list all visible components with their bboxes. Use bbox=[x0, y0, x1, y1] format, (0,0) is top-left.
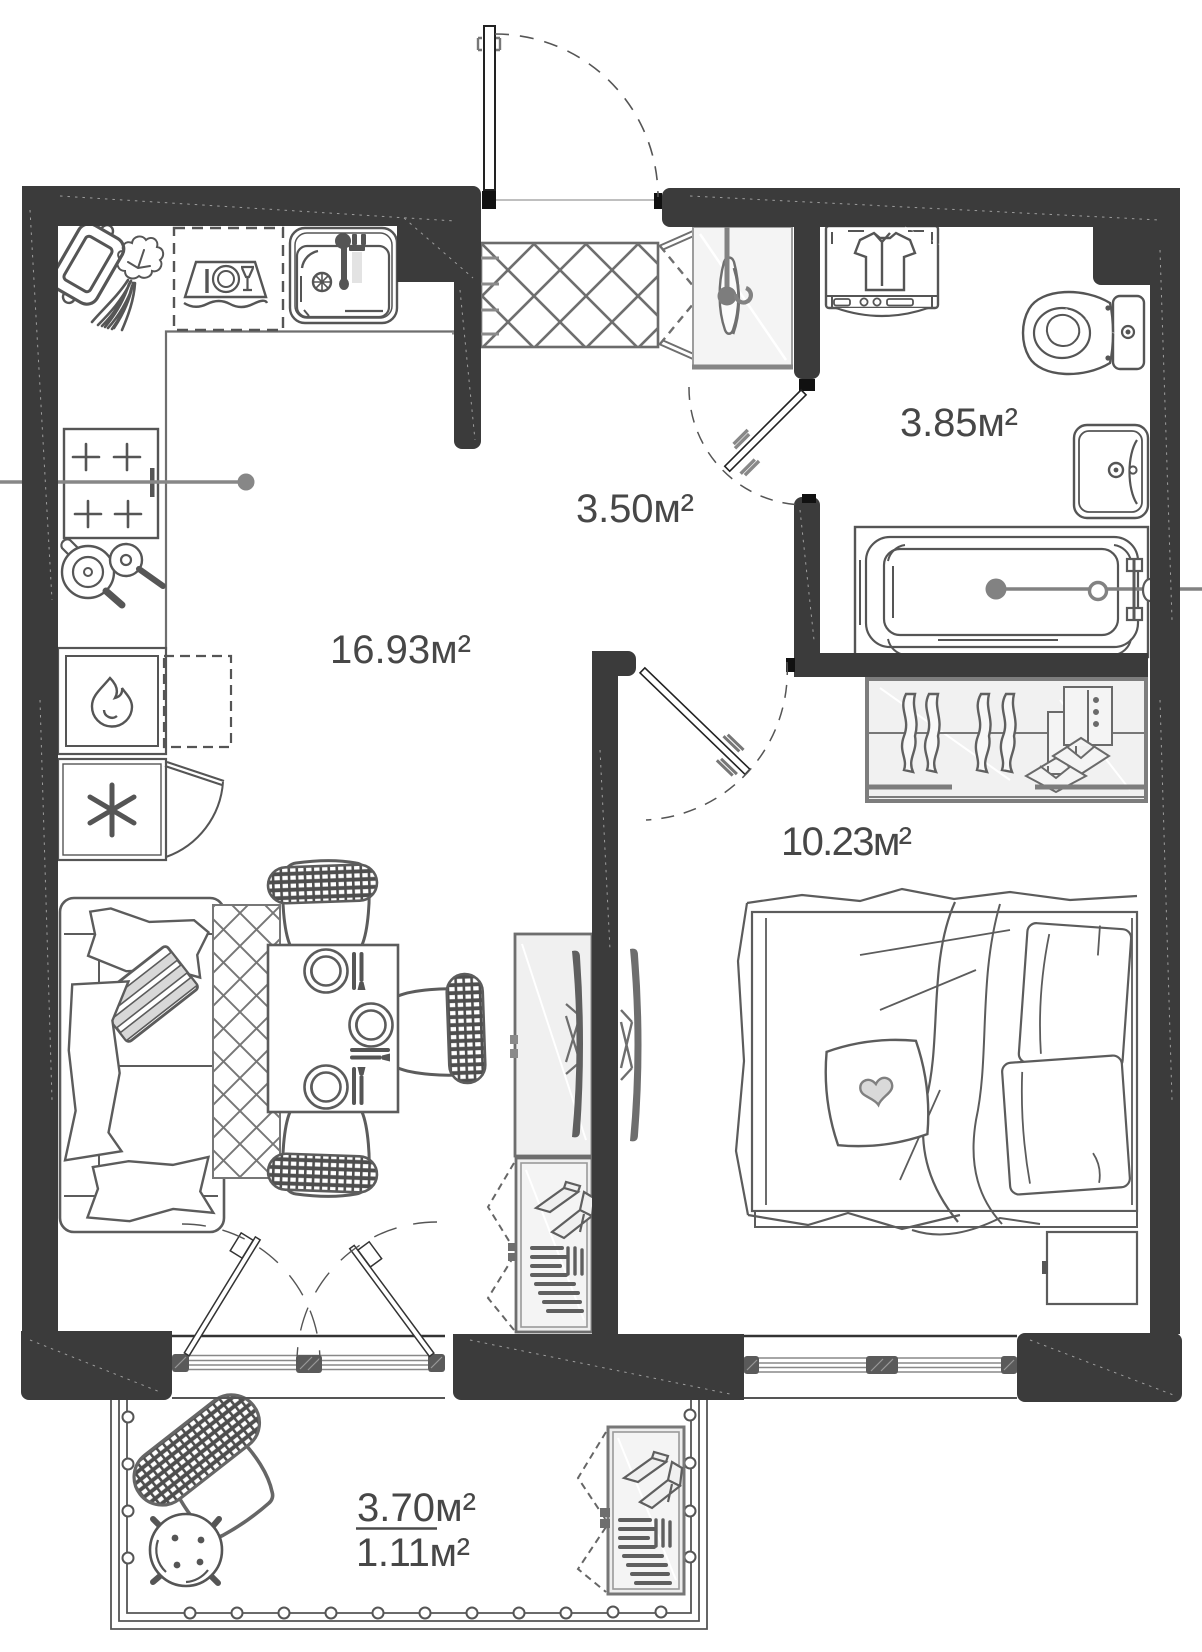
svg-text:10.23м²: 10.23м² bbox=[781, 820, 912, 864]
svg-text:3.85м²: 3.85м² bbox=[900, 401, 1018, 445]
svg-text:3.50м²: 3.50м² bbox=[576, 487, 694, 531]
svg-text:1.11м²: 1.11м² bbox=[356, 1531, 470, 1575]
svg-text:3.70м²: 3.70м² bbox=[357, 1486, 476, 1530]
svg-text:16.93м²: 16.93м² bbox=[330, 628, 471, 672]
